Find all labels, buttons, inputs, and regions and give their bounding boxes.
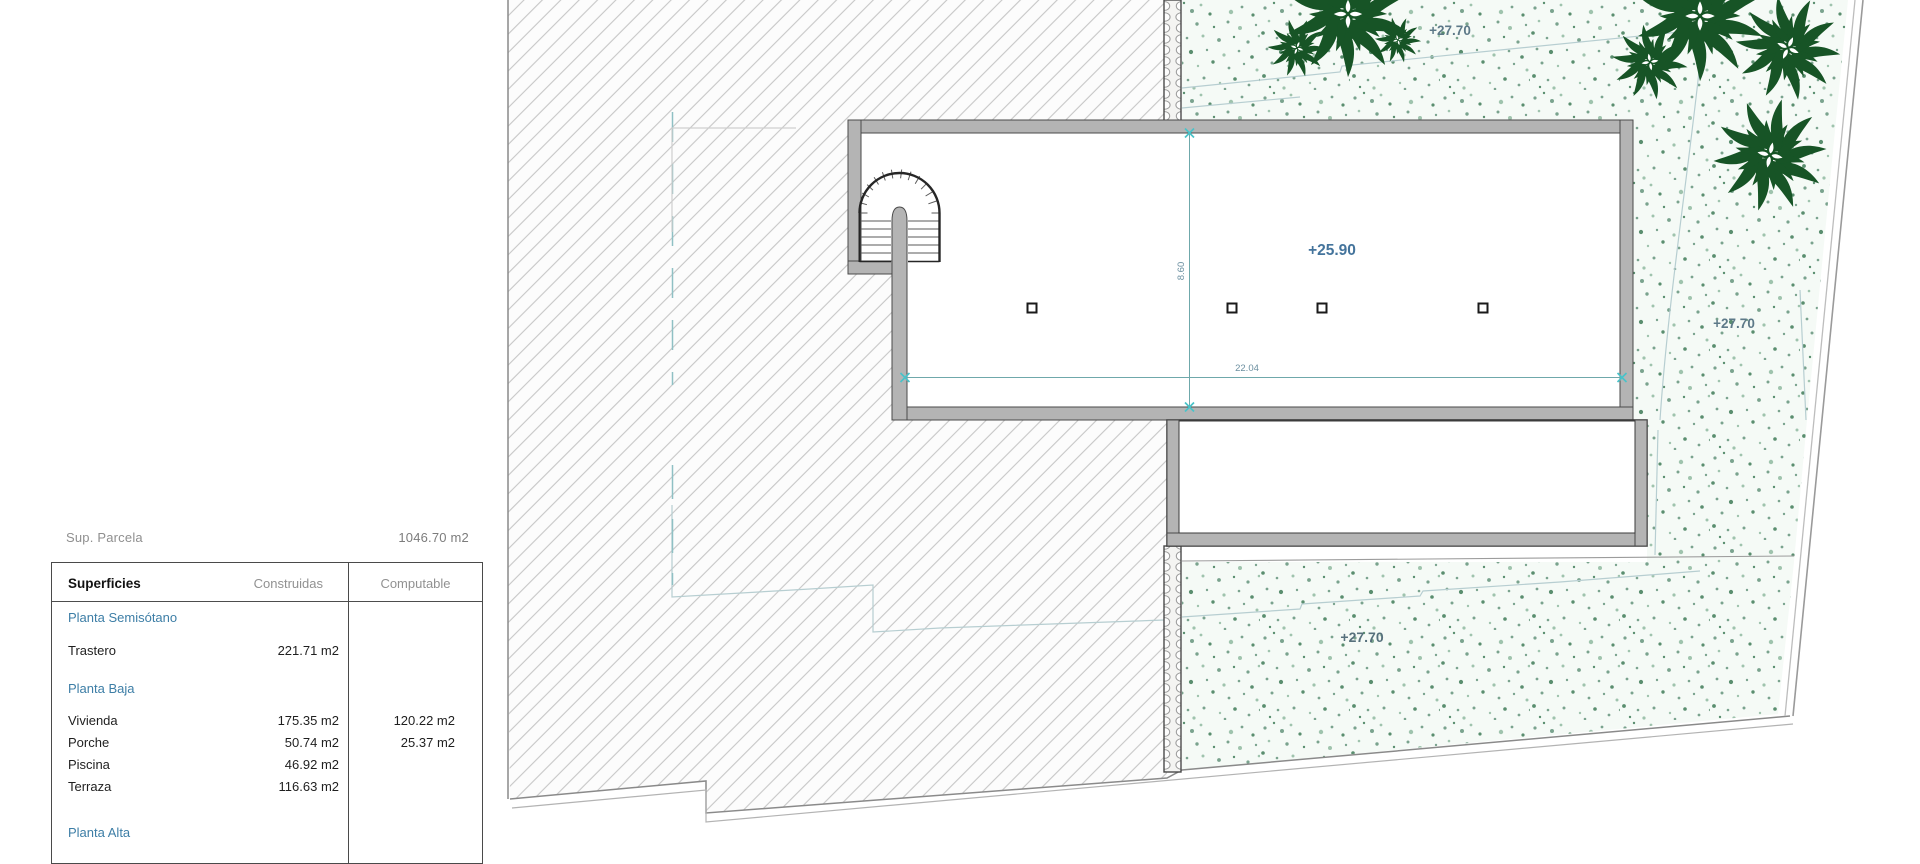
table-row-computable: 25.37 m2 xyxy=(52,735,455,750)
section-title-planta-baja: Planta Baja xyxy=(68,681,135,696)
dimension-label-width: 22.04 xyxy=(1235,363,1259,374)
parcel-summary-value: 1046.70 m2 xyxy=(398,530,469,545)
level-label-garden-bottom: +27.70 xyxy=(1340,629,1383,645)
level-label-building-floor: +25.90 xyxy=(1308,242,1356,259)
table-header-computable: Computable xyxy=(349,576,482,591)
dimension-label-depth: 8.60 xyxy=(1176,262,1187,281)
table-row-computable: 120.22 m2 xyxy=(52,713,455,728)
terrace-structure xyxy=(1167,420,1647,546)
table-row-construida: 46.92 m2 xyxy=(52,757,339,772)
table-header-construidas: Construidas xyxy=(52,576,323,591)
stair-core-wall xyxy=(892,207,907,420)
areas-table: Superficies Construidas Computable Plant… xyxy=(51,562,483,864)
section-title-planta-alta: Planta Alta xyxy=(68,825,130,840)
column-marker xyxy=(1479,304,1488,313)
building-outline xyxy=(848,120,1633,420)
level-label-garden-top: +27.70 xyxy=(1429,23,1471,38)
table-row-construida: 221.71 m2 xyxy=(52,643,339,658)
table-row-construida: 116.63 m2 xyxy=(52,779,339,794)
site-plan-page: { "plan": { "levels": { "garden_top": "+… xyxy=(0,0,1920,837)
table-header-underline xyxy=(52,601,482,602)
level-label-garden-right: +27.70 xyxy=(1713,316,1755,331)
column-marker xyxy=(1318,304,1327,313)
parcel-summary: Sup. Parcela 1046.70 m2 xyxy=(51,530,483,548)
column-marker xyxy=(1028,304,1037,313)
parcel-summary-label: Sup. Parcela xyxy=(66,530,143,545)
column-marker xyxy=(1228,304,1237,313)
section-title-planta-semisotano: Planta Semisótano xyxy=(68,610,177,625)
